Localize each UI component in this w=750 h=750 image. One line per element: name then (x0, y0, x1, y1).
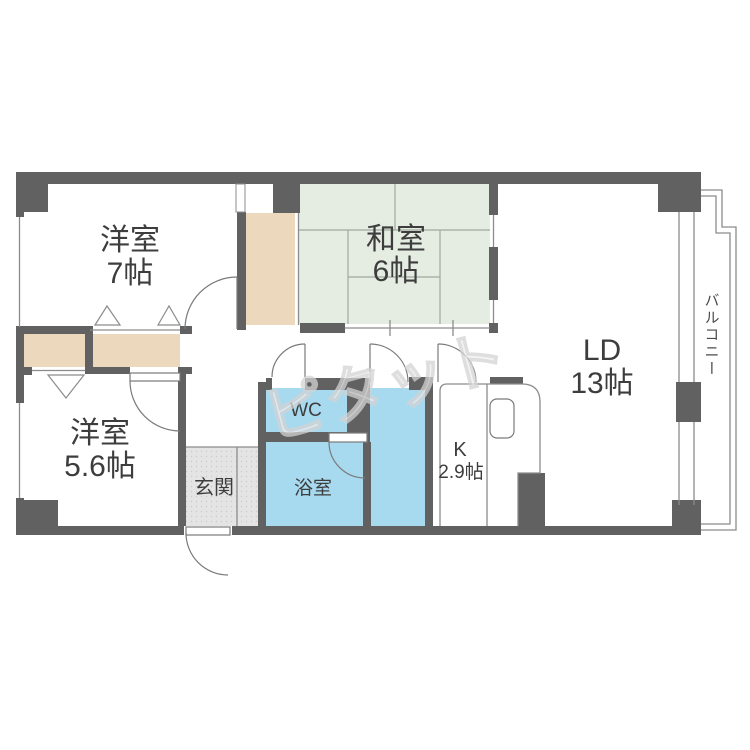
label-western56-size: 5.6帖 (64, 450, 136, 483)
closet-right-cell (93, 334, 180, 367)
closet-tall (246, 213, 295, 325)
closet-left-cell (24, 334, 85, 367)
wall-slot-top (236, 184, 245, 212)
label-western56-name: 洋室 (70, 417, 130, 450)
floor-plan-page: バルコニー 洋室 7帖 和室 6帖 LD 13帖 洋室 5.6帖 玄関 WC 浴… (0, 0, 750, 750)
label-western7-size: 7帖 (107, 257, 154, 290)
label-bath: 浴室 (294, 477, 332, 499)
label-western7-name: 洋室 (100, 224, 160, 257)
label-living-name: LD (583, 334, 621, 367)
label-living-size: 13帖 (570, 367, 633, 400)
floor-plan-canvas: バルコニー 洋室 7帖 和室 6帖 LD 13帖 洋室 5.6帖 玄関 WC 浴… (0, 0, 750, 750)
label-japanese6-name: 和室 (366, 223, 426, 256)
label-entrance: 玄関 (194, 476, 234, 499)
balcony-label: バルコニー (703, 293, 720, 378)
kitchen-sink (490, 399, 514, 438)
label-kitchen-name: K (453, 439, 467, 461)
label-japanese6-size: 6帖 (373, 255, 420, 288)
label-kitchen-size: 2.9帖 (438, 461, 483, 483)
